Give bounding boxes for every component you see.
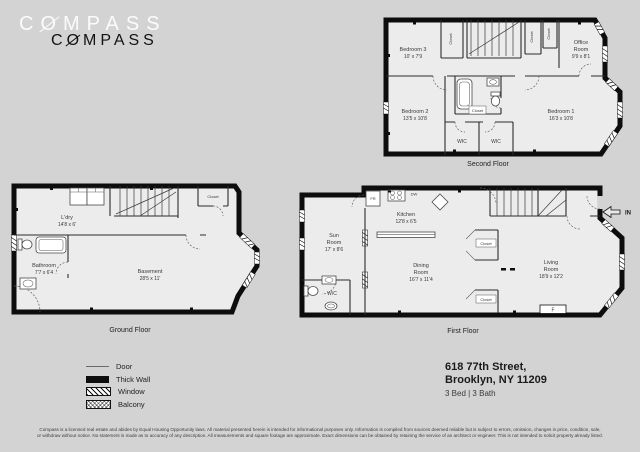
balcony-swatch-icon [86,400,111,409]
office-dims: 9'9 x 8'1 [572,54,591,60]
entry-arrow-icon [603,207,620,218]
legend-window-label: Window [118,387,145,396]
sink-icon [20,278,36,289]
wc-label: W/C [327,291,337,297]
second-floor-plan: Closet Bedroom 3 10' x 7'9 Closet Closet… [383,14,637,166]
toilet-icon [304,286,308,296]
laundry-label: L'dry [61,215,73,221]
living-dims: 18'9 x 12'2 [539,274,563,280]
dining-label: Dining [413,263,429,269]
sunroom-dims: 17' x 8'6 [325,247,344,253]
ground-floor-caption: Ground Floor [109,327,150,334]
office-label: Office [574,40,588,46]
entry-in-label: IN [625,211,631,217]
closet-label: Closet [529,30,534,42]
closet-label: Closet [207,194,219,199]
disclaimer-line2: or withdraw without notice. No statement… [0,433,640,439]
compass-logo-black: COMPASS [51,32,158,50]
legend-balcony-label: Balcony [118,400,145,409]
living-label2: Room [544,267,559,273]
legend-thick-wall-label: Thick Wall [116,375,150,384]
logo-letter: C [19,13,40,35]
legend-row-balcony: Balcony [86,400,150,409]
logo-letters: MPASS [83,32,158,49]
fireplace-label: F [551,308,554,314]
bedroom3-dims: 10' x 7'9 [404,54,423,60]
bathroom-dims: 7'7 x 6'4 [35,270,54,276]
living-label: Living [544,260,558,266]
legend-door-label: Door [116,362,132,371]
hall-closet-label: Closet [472,108,484,113]
kitchen-dims: 12'8 x 6'5 [395,219,416,225]
first-floor-plan: Closet Closet F IN FR DW Kitchen 12'8 x … [298,182,638,330]
bathroom-label: Bathroom [32,263,56,269]
kitchen-label: Kitchen [397,212,415,218]
bedroom1-label: Bedroom 1 [548,109,575,115]
door-swatch-icon [86,363,109,370]
sink-icon [487,78,499,86]
closet-label: Closet [480,241,492,246]
second-floor-caption: Second Floor [467,161,509,168]
laundry-dims: 14'8 x 6' [58,222,76,228]
bedroom2-label: Bedroom 2 [402,109,429,115]
address-block: 618 77th Street, Brooklyn, NY 11209 3 Be… [445,361,547,398]
office-label2: Room [574,47,589,53]
fr-label: FR [370,196,375,201]
legend-row-thick-wall: Thick Wall [86,375,150,384]
compass-o-needle-icon: O [67,32,83,50]
laundry-machines [70,188,104,205]
legend-row-window: Window [86,387,150,396]
address-line2: Brooklyn, NY 11209 [445,374,547,387]
bedroom3-label: Bedroom 3 [400,47,427,53]
bedroom2-dims: 13'5 x 10'8 [403,116,427,122]
closet-label: Closet [546,27,551,39]
sunroom-label2: Room [327,240,342,246]
legend: Door Thick Wall Window Balcony [86,362,150,409]
window-swatch-icon [86,387,111,396]
dining-label2: Room [414,270,429,276]
wic-label: WIC [491,139,501,145]
first-floor-caption: First Floor [447,328,479,335]
thick-wall-swatch-icon [86,376,109,383]
basin-icon [325,302,337,310]
toilet-icon [18,239,22,250]
sink-icon [322,276,336,284]
closet-label: Closet [480,297,492,302]
legend-row-door: Door [86,362,150,371]
bedroom1-dims: 16'3 x 10'8 [549,116,573,122]
basement-label: Basement [138,269,163,275]
disclaimer: Compass is a licensed real estate and ab… [0,427,640,439]
basement-dims: 28'5 x 11' [140,276,161,282]
toilet-icon [491,92,500,96]
wic-label: WIC [457,139,467,145]
closet-label: Closet [448,32,453,44]
sunroom-label: Sun [329,233,339,239]
logo-letter: C [51,32,67,49]
address-line1: 618 77th Street, [445,361,547,374]
dining-dims: 16'7 x 11'4 [409,277,433,283]
beds-baths: 3 Bed | 3 Bath [445,389,547,398]
ground-floor-plan: L'dry 14'8 x 6' Closet Bathroom 7'7 x 6'… [10,178,288,326]
dw-label: DW [411,192,418,197]
